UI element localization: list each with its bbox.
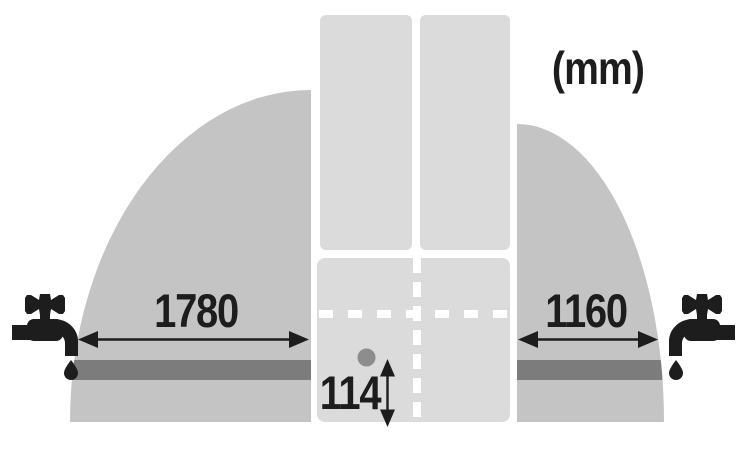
water-inlet-dot [358, 349, 376, 367]
left-supply-pipe-bar [58, 360, 316, 380]
dimension-left-value: 1780 [154, 286, 238, 338]
right-supply-pipe-bar [512, 360, 670, 380]
water-connection-clearance-diagram: 1780 1160 114 (mm) [0, 0, 750, 449]
appliance-left-door [320, 15, 412, 250]
dimension-right-value: 1160 [545, 286, 627, 338]
unit-label: (mm) [552, 43, 644, 95]
dimension-height-value: 114 [320, 368, 383, 420]
faucet-left-icon [12, 294, 78, 380]
faucet-right-icon [669, 294, 735, 380]
appliance-right-door [420, 15, 510, 250]
